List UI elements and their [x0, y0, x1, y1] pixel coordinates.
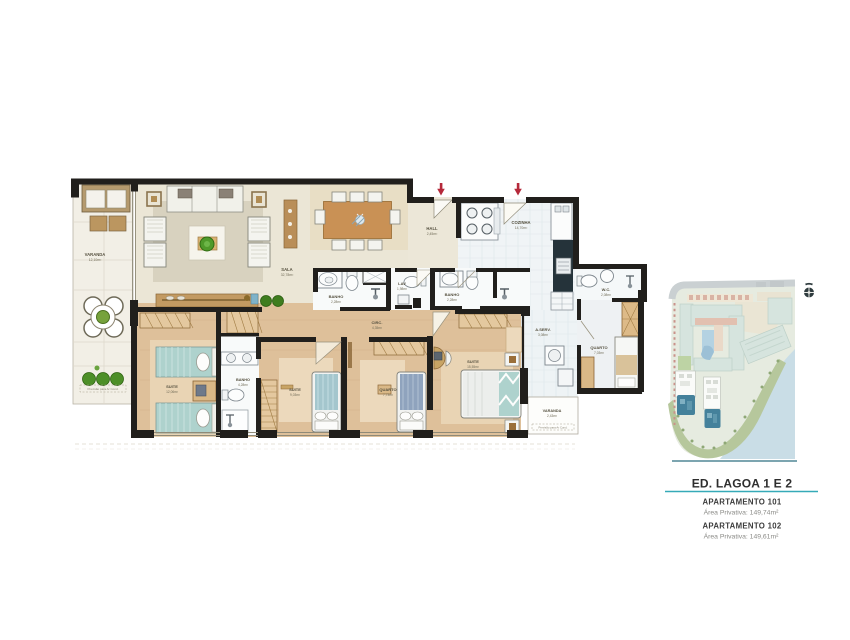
svg-text:12,10m²: 12,10m² — [89, 258, 102, 262]
svg-text:7,73m²: 7,73m² — [383, 393, 393, 397]
svg-text:BANHO: BANHO — [236, 378, 250, 382]
svg-text:2,08m²: 2,08m² — [601, 293, 611, 297]
svg-text:2,28m²: 2,28m² — [331, 300, 341, 304]
svg-text:W.C.: W.C. — [602, 287, 611, 292]
svg-text:LAV: LAV — [398, 281, 406, 286]
svg-text:Previsão para Ar Cond.: Previsão para Ar Cond. — [539, 426, 568, 430]
svg-text:HALL: HALL — [426, 226, 438, 231]
svg-text:COZINHA: COZINHA — [511, 220, 530, 225]
svg-text:VARANDA: VARANDA — [543, 409, 562, 413]
svg-text:BANHO: BANHO — [329, 294, 344, 299]
svg-text:QUARTO: QUARTO — [590, 345, 607, 350]
svg-text:3,08m²: 3,08m² — [538, 333, 548, 337]
svg-text:32,78m²: 32,78m² — [281, 273, 294, 277]
svg-text:SUITE: SUITE — [289, 387, 301, 392]
svg-text:9,03m²: 9,03m² — [290, 393, 300, 397]
svg-text:ED. LAGOA 1 E 2: ED. LAGOA 1 E 2 — [692, 477, 793, 491]
svg-text:SALA: SALA — [281, 267, 292, 272]
svg-text:4,28m²: 4,28m² — [238, 383, 248, 387]
svg-text:2,43m²: 2,43m² — [547, 414, 557, 418]
svg-text:2,45m²: 2,45m² — [427, 232, 438, 236]
svg-text:4,35m²: 4,35m² — [372, 326, 382, 330]
svg-text:SUITE: SUITE — [467, 359, 479, 364]
svg-text:2,28m²: 2,28m² — [447, 298, 457, 302]
svg-text:BANHO: BANHO — [445, 292, 460, 297]
svg-text:QUARTO: QUARTO — [379, 387, 396, 392]
svg-text:APARTAMENTO 101: APARTAMENTO 101 — [702, 498, 781, 507]
svg-text:Área Privativa: 149,74m²: Área Privativa: 149,74m² — [704, 508, 780, 517]
svg-text:SUITE: SUITE — [166, 384, 178, 389]
svg-text:CIRC.: CIRC. — [372, 320, 383, 325]
svg-text:1,98m²: 1,98m² — [397, 287, 407, 291]
svg-text:APARTAMENTO 102: APARTAMENTO 102 — [702, 522, 781, 531]
svg-text:7,03m²: 7,03m² — [594, 351, 604, 355]
svg-text:15,55m²: 15,55m² — [467, 365, 479, 369]
svg-text:A.SERV.: A.SERV. — [535, 327, 551, 332]
svg-text:12,06m²: 12,06m² — [166, 390, 178, 394]
svg-text:14,70m²: 14,70m² — [515, 226, 528, 230]
svg-text:Previsão para Ar Cond.: Previsão para Ar Cond. — [87, 387, 118, 391]
svg-text:VARANDA: VARANDA — [85, 252, 106, 257]
svg-text:Área Privativa: 149,61m²: Área Privativa: 149,61m² — [704, 532, 780, 541]
